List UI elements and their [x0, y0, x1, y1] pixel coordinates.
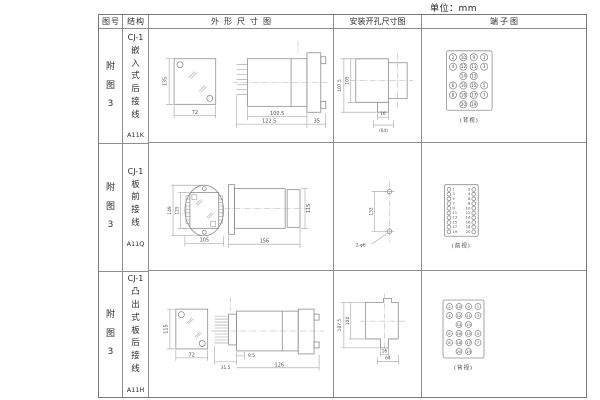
svg-text:15: 15 — [452, 220, 457, 224]
side-view: 156 115 — [225, 185, 312, 249]
svg-text:18: 18 — [461, 92, 467, 97]
dim-depth-total: 156 — [260, 239, 269, 245]
mount-type-label: 凸出式板后接线 — [131, 286, 141, 375]
svg-text:1: 1 — [452, 187, 455, 191]
dim-front-height: 115 — [163, 324, 169, 333]
svg-text:18: 18 — [466, 225, 471, 229]
svg-text:7: 7 — [452, 202, 455, 206]
svg-text:14: 14 — [466, 216, 471, 220]
header-terminal-diagram: 端子图 — [422, 15, 586, 29]
svg-text:11: 11 — [471, 64, 477, 69]
svg-text:8: 8 — [468, 202, 471, 206]
dim-inner-height: 105 — [344, 76, 350, 85]
mount-type-label: 嵌入式后接线 — [131, 45, 141, 122]
svg-text:7: 7 — [477, 340, 480, 345]
dim-depth-body: 100.5 — [270, 111, 284, 117]
svg-text:13: 13 — [452, 216, 457, 220]
svg-text:20: 20 — [466, 230, 471, 234]
model-label: CJ-1 — [128, 274, 144, 283]
header-outline-dims: 外形尺寸图 — [149, 15, 334, 29]
svg-text:1: 1 — [477, 304, 480, 309]
dim-hole-pitch: 133 — [369, 207, 375, 216]
figure-no-text: 附图3 — [106, 58, 116, 115]
dim-front-width: 72 — [192, 110, 198, 116]
svg-text:10: 10 — [461, 55, 467, 60]
svg-text:4: 4 — [452, 64, 455, 69]
svg-text:3: 3 — [452, 192, 455, 196]
outline-cell-a11q: 149 125 105 156 115 — [149, 143, 334, 271]
dim-flange-width: 35 — [314, 119, 320, 125]
svg-text:5: 5 — [483, 83, 486, 88]
svg-text:10: 10 — [466, 206, 471, 210]
install-cell-a11q: 133 2-φ6 — [334, 143, 422, 271]
svg-text:19: 19 — [471, 102, 477, 107]
svg-text:20: 20 — [457, 349, 462, 354]
dim-front-width: 105 — [200, 238, 209, 244]
terminal-circles: 12 34 56 78 910 1112 1314 1516 1718 1920 — [447, 187, 476, 233]
header-figure-no: 图号 — [99, 15, 123, 29]
svg-text:12: 12 — [461, 64, 467, 69]
terminal-circles: 2 10 9 1 4 12 11 3 14 13 6 16 15 5 8 18 … — [447, 304, 482, 355]
figure-no-a11h: 附图3 — [99, 271, 123, 397]
svg-text:19: 19 — [452, 230, 457, 234]
side-view: 100.5 122.5 35 — [233, 41, 329, 128]
svg-text:18: 18 — [457, 340, 462, 345]
figure-no-a11k: 附图3 — [99, 29, 123, 144]
svg-text:13: 13 — [471, 74, 477, 79]
dim-front-width: 72 — [189, 352, 195, 358]
structure-a11h: CJ-1 凸出式板后接线 A11H — [123, 271, 149, 397]
svg-text:5: 5 — [452, 197, 455, 201]
svg-text:1: 1 — [483, 55, 486, 60]
svg-text:17: 17 — [471, 92, 477, 97]
terminal-cell-a11k: 2 10 9 1 4 12 11 3 14 13 6 16 15 5 8 18 … — [422, 29, 586, 143]
svg-text:6: 6 — [448, 331, 451, 336]
svg-text:3: 3 — [477, 313, 480, 318]
install-drawing-a11h: 107.5 104 16 64 — [334, 271, 421, 397]
outline-drawing-a11h: 115 72 9.5 31.5 126 — [149, 271, 333, 397]
svg-text:17: 17 — [452, 225, 457, 229]
front-view: 135 72 — [163, 59, 216, 118]
terminal-view-label: (背视) — [460, 116, 479, 124]
structure-a11q: CJ-1 板前接线 A11Q — [123, 143, 149, 272]
terminal-drawing-a11q: 12 34 56 78 910 1112 1314 1516 1718 1920… — [422, 143, 586, 270]
side-view: 9.5 31.5 126 — [211, 297, 324, 371]
dim-base-width: (64) — [379, 128, 388, 134]
unit-label: 单位：mm — [430, 1, 477, 14]
svg-text:8: 8 — [448, 340, 451, 345]
hole-spec-label: 2-φ6 — [356, 243, 366, 249]
svg-text:9: 9 — [467, 304, 470, 309]
svg-text:2: 2 — [468, 187, 471, 191]
figure-no-a11q: 附图3 — [99, 143, 123, 272]
svg-text:16: 16 — [461, 83, 467, 88]
dim-pin-pitch: 9.5 — [248, 353, 255, 359]
svg-text:19: 19 — [466, 349, 471, 354]
dim-front-height: 135 — [163, 77, 169, 86]
figure-no-text: 附图3 — [106, 306, 116, 363]
svg-text:17: 17 — [466, 340, 471, 345]
terminal-cell-a11q: 12 34 56 78 910 1112 1314 1516 1718 1920… — [422, 143, 586, 271]
dim-front-height-inner: 125 — [174, 206, 180, 215]
svg-text:9: 9 — [452, 206, 455, 210]
figure-no-text: 附图3 — [106, 179, 116, 236]
terminal-view-label: (背视) — [454, 364, 473, 372]
outline-cell-a11h: 115 72 9.5 31.5 126 — [149, 271, 334, 397]
svg-text:5: 5 — [477, 331, 480, 336]
svg-text:2: 2 — [448, 304, 451, 309]
svg-text:14: 14 — [457, 322, 462, 327]
install-cell-a11h: 107.5 104 16 64 — [334, 271, 422, 397]
front-view: 115 72 — [163, 309, 207, 361]
header-install-dims: 安装开孔尺寸图 — [334, 15, 422, 29]
svg-text:8: 8 — [452, 92, 455, 97]
terminal-drawing-a11h: 2 10 9 1 4 12 11 3 14 13 6 16 15 5 8 18 … — [422, 271, 586, 397]
terminal-view-label: (前视) — [452, 242, 471, 250]
model-code-label: A11K — [127, 131, 144, 139]
mount-type-label: 板前接线 — [131, 179, 141, 230]
model-code-label: A11H — [127, 386, 145, 394]
svg-text:2: 2 — [452, 55, 455, 60]
svg-text:6: 6 — [452, 83, 455, 88]
header-structure: 结构 — [123, 15, 149, 29]
dim-inner-height: 104 — [345, 317, 351, 326]
model-code-label: A11Q — [127, 240, 145, 248]
svg-text:11: 11 — [452, 211, 457, 215]
svg-text:10: 10 — [457, 304, 462, 309]
svg-text:12: 12 — [457, 313, 462, 318]
dim-slot-width: 16 — [380, 111, 386, 117]
terminal-cell-a11h: 2 10 9 1 4 12 11 3 14 13 6 16 15 5 8 18 … — [422, 271, 586, 397]
dim-depth-total: 122.5 — [262, 119, 276, 125]
dim-front-height-outer: 149 — [167, 206, 173, 215]
terminal-drawing-a11k: 2 10 9 1 4 12 11 3 14 13 6 16 15 5 8 18 … — [422, 29, 586, 142]
terminal-circles: 2 10 9 1 4 12 11 3 14 13 6 16 15 5 8 18 … — [449, 54, 487, 108]
svg-text:4: 4 — [468, 192, 471, 196]
dim-outer-height: 107.5 — [337, 79, 343, 92]
dim-side-height: 115 — [306, 204, 312, 213]
dim-depth-total: 126 — [275, 362, 284, 368]
svg-text:15: 15 — [466, 331, 471, 336]
model-label: CJ-1 — [128, 33, 144, 42]
outline-drawing-a11k: 135 72 100.5 122.5 35 — [149, 29, 333, 142]
structure-a11k: CJ-1 嵌入式后接线 A11K — [123, 29, 149, 144]
dim-base-width: 64 — [385, 356, 391, 362]
install-drawing-a11q: 133 2-φ6 — [334, 143, 421, 270]
model-label: CJ-1 — [128, 167, 144, 176]
outline-cell-a11k: 135 72 100.5 122.5 35 — [149, 29, 334, 143]
svg-text:11: 11 — [466, 313, 471, 318]
svg-text:16: 16 — [457, 331, 462, 336]
dim-pin-depth: 31.5 — [221, 365, 231, 371]
dim-outer-height: 107.5 — [337, 319, 343, 332]
dim-slot-width: 16 — [382, 348, 388, 354]
install-cell-a11k: 107.5 105 16 (64) — [334, 29, 422, 143]
svg-text:7: 7 — [483, 92, 486, 97]
svg-text:15: 15 — [471, 83, 477, 88]
svg-text:14: 14 — [461, 74, 467, 79]
outline-drawing-a11q: 149 125 105 156 115 — [149, 143, 333, 270]
dimension-table: 图号 结构 外形尺寸图 安装开孔尺寸图 端子图 附图3 CJ-1 嵌入式后接线 … — [98, 14, 587, 398]
svg-text:3: 3 — [483, 64, 486, 69]
install-drawing-a11k: 107.5 105 16 (64) — [334, 29, 421, 142]
svg-text:6: 6 — [468, 197, 471, 201]
svg-text:16: 16 — [466, 220, 471, 224]
svg-text:9: 9 — [472, 55, 475, 60]
svg-text:4: 4 — [448, 313, 451, 318]
front-view: 149 125 105 — [167, 185, 224, 246]
svg-text:20: 20 — [461, 102, 467, 107]
svg-text:12: 12 — [466, 211, 471, 215]
svg-text:13: 13 — [466, 322, 471, 327]
